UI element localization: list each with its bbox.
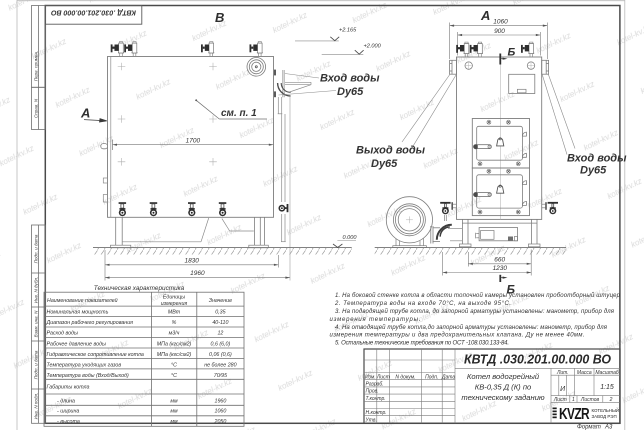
svg-text:Н.контр.: Н.контр. [366,410,387,416]
svg-text:Б: Б [508,47,516,59]
svg-text:- высота: - высота [57,419,80,425]
svg-text:КВТД .030.201.00.000 ВО: КВТД .030.201.00.000 ВО [464,352,611,366]
svg-text:0,06 (0,6): 0,06 (0,6) [209,352,232,358]
svg-text:0,35: 0,35 [215,310,225,316]
svg-text:40-110: 40-110 [212,320,228,326]
svg-text:2. Температура воды на входе: 2. Температура воды на входе 70°С, на вы… [334,301,511,307]
svg-text:Пров.: Пров. [366,389,379,395]
svg-text:мм: мм [170,398,178,404]
svg-text:Лист: Лист [553,397,567,403]
svg-text:5. Остальные технические треб: 5. Остальные технические требования по О… [335,341,509,347]
svg-text:Перв. примен.: Перв. примен. [33,51,38,82]
svg-text:Масштаб: Масштаб [595,370,619,376]
svg-text:МПа (кгс/см2): МПа (кгс/см2) [157,352,192,358]
svg-text:Дата: Дата [441,374,455,380]
svg-text:2: 2 [609,397,613,403]
svg-text:Гидравлическое сопротивление к: Гидравлическое сопротивление котла [47,352,144,358]
svg-text:техническому заданию: техническому заданию [461,393,545,402]
svg-text:мм: мм [170,419,178,425]
svg-text:Утв.: Утв. [366,417,377,423]
svg-text:Техническая характеристика: Техническая характеристика [94,285,185,292]
svg-text:Подп. и дата: Подп. и дата [33,350,38,379]
svg-text:Единицы: Единицы [163,295,185,301]
svg-text:КВ-0,35 Д (К) по: КВ-0,35 Д (К) по [475,383,531,392]
svg-text:°С: °С [171,362,177,368]
svg-text:измерения: измерения [161,301,188,307]
svg-text:1: 1 [572,397,575,403]
svg-text:Формат: Формат [577,425,601,430]
svg-text:Лит.: Лит. [556,370,569,376]
svg-text:ЗАВОД РЭП: ЗАВОД РЭП [592,414,617,419]
svg-text:Dy65: Dy65 [337,86,364,98]
svg-text:0.000: 0.000 [343,235,358,241]
svg-text:1830: 1830 [184,257,199,264]
svg-text:измерения температуры.: измерения температуры. [330,317,421,323]
svg-text:Лист: Лист [376,374,390,380]
svg-text:см. п. 1: см. п. 1 [221,108,257,119]
svg-text:KVZR: KVZR [559,406,589,423]
svg-text:А3: А3 [604,425,613,430]
svg-text:N докум.: N докум. [395,374,415,380]
svg-text:3. На подводящей трубе котла,: 3. На подводящей трубе котла, до запорно… [335,308,615,315]
svg-text:1960: 1960 [215,398,227,404]
svg-text:2050: 2050 [214,419,227,425]
svg-text:1:15: 1:15 [600,384,614,391]
svg-text:Наименование показателей: Наименование показателей [47,297,118,304]
svg-text:не более 280: не более 280 [204,362,236,368]
svg-text:Выход воды: Выход воды [356,145,426,157]
svg-text:Рабочее давление воды: Рабочее давление воды [47,342,106,348]
svg-text:Расход воды: Расход воды [47,330,78,336]
svg-text:%: % [172,320,177,326]
svg-text:Взам. инв. N: Взам. инв. N [33,310,38,337]
svg-text:Подп. и дата: Подп. и дата [33,234,38,263]
svg-text:Габариты котла: Габариты котла [47,385,90,391]
svg-text:Вход воды: Вход воды [320,73,380,85]
svg-text:Dy65: Dy65 [580,165,607,177]
svg-text:Номинальная мощность: Номинальная мощность [47,310,109,316]
svg-text:В: В [215,10,224,25]
svg-text:Котел водогрейный: Котел водогрейный [467,372,540,381]
svg-text:измерения температуры и два пр: измерения температуры и два предохраните… [330,333,585,339]
svg-text:Разраб.: Разраб. [366,381,384,387]
svg-text:Dy65: Dy65 [371,158,398,170]
svg-text:12: 12 [217,330,223,336]
svg-text:1. На боковой стенке котла в: 1. На боковой стенке котла в области топ… [335,292,621,299]
svg-text:Вход воды: Вход воды [567,153,627,165]
svg-text:Справ. N: Справ. N [33,98,38,118]
svg-text:Значение: Значение [209,298,232,304]
svg-text:Температура воды (Вход/Выход): Температура воды (Вход/Выход) [47,373,129,379]
svg-text:Температура уходящих газов: Температура уходящих газов [47,362,122,368]
svg-text:0,6 (6,0): 0,6 (6,0) [211,342,231,348]
svg-text:1060: 1060 [493,18,508,25]
svg-text:°С: °С [171,373,177,379]
svg-text:660: 660 [494,256,505,263]
svg-text:МПа (кгс/см2): МПа (кгс/см2) [157,342,192,348]
svg-text:МВт: МВт [168,310,181,316]
svg-text:Листов: Листов [580,397,600,403]
svg-text:+2.165: +2.165 [339,28,357,34]
svg-text:1700: 1700 [186,137,201,144]
svg-text:1230: 1230 [493,265,508,272]
svg-text:Инв. N дубл.: Инв. N дубл. [33,277,38,304]
svg-text:+2.000: +2.000 [364,43,382,49]
svg-text:КОТЕЛЬНЫЙ: КОТЕЛЬНЫЙ [592,408,620,413]
svg-text:Подп.: Подп. [425,374,438,380]
svg-text:1960: 1960 [190,270,205,277]
svg-text:900: 900 [494,28,505,35]
svg-text:Диапазон рабочего регулировани: Диапазон рабочего регулирования [46,320,134,326]
svg-text:- длина: - длина [57,398,75,404]
svg-text:А: А [480,8,490,23]
svg-text:Масса: Масса [577,370,592,376]
svg-text:мм: мм [170,408,178,414]
svg-text:- ширина: - ширина [57,408,79,414]
svg-text:70/95: 70/95 [214,373,227,379]
svg-text:м3/ч: м3/ч [169,330,180,336]
svg-text:Изм.: Изм. [365,374,376,380]
svg-text:КВТД .030.201.00.000 ВО: КВТД .030.201.00.000 ВО [51,8,136,17]
svg-text:1060: 1060 [215,408,227,414]
svg-text:Т.контр.: Т.контр. [366,396,386,402]
svg-text:4. На отводящей трубе котла,д: 4. На отводящей трубе котла,до запорной … [335,324,608,331]
svg-text:Инв. N подл.: Инв. N подл. [33,393,38,420]
svg-text:А: А [80,106,90,121]
